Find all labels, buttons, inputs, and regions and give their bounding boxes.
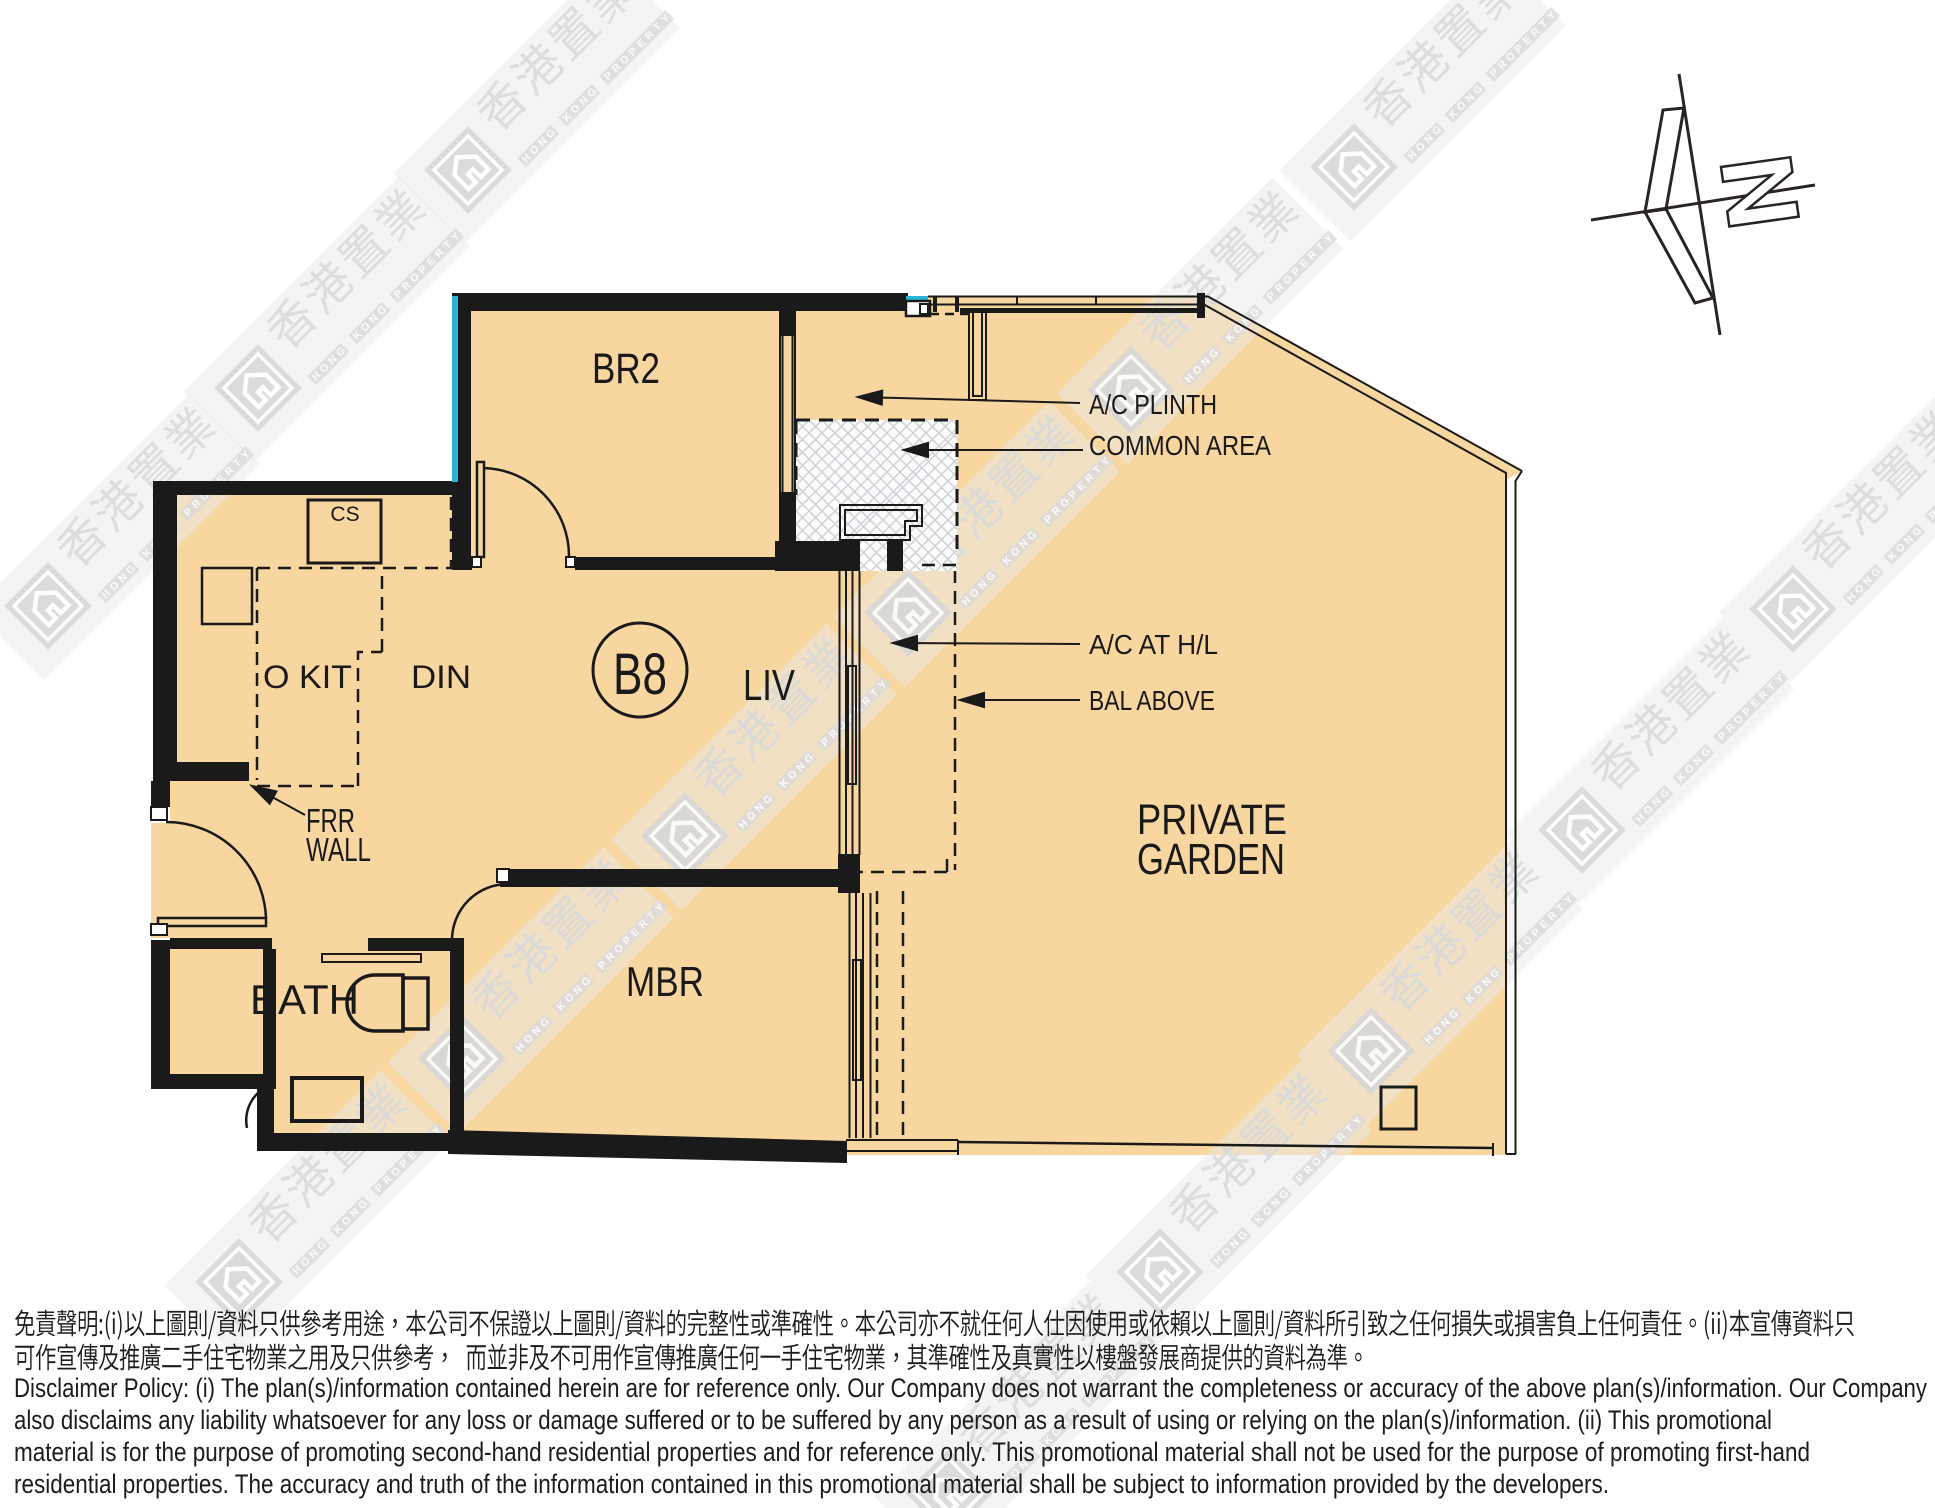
svg-text:A/C PLINTH: A/C PLINTH — [1089, 389, 1217, 420]
svg-text:DIN: DIN — [411, 659, 471, 695]
svg-text:Disclaimer Policy: (i) The pla: Disclaimer Policy: (i) The plan(s)/infor… — [14, 1373, 1927, 1403]
svg-text:LIV: LIV — [743, 661, 796, 710]
svg-text:MBR: MBR — [626, 958, 704, 1005]
svg-text:residential properties. The ac: residential properties. The accuracy and… — [14, 1469, 1609, 1499]
svg-text:BATH: BATH — [250, 976, 359, 1023]
svg-text:GARDEN: GARDEN — [1137, 835, 1285, 884]
svg-text:B8: B8 — [613, 642, 667, 707]
svg-text:COMMON AREA: COMMON AREA — [1089, 430, 1271, 461]
svg-text:BAL ABOVE: BAL ABOVE — [1089, 685, 1215, 716]
svg-text:CS: CS — [330, 503, 359, 526]
svg-text:WALL: WALL — [306, 831, 371, 868]
svg-text:BR2: BR2 — [592, 345, 660, 393]
svg-text:O KIT: O KIT — [263, 659, 352, 695]
svg-text:A/C AT H/L: A/C AT H/L — [1089, 629, 1218, 660]
svg-text:material is for the purpose of: material is for the purpose of promoting… — [14, 1437, 1810, 1467]
svg-text:also disclaims any liability w: also disclaims any liability whatsoever … — [14, 1405, 1772, 1435]
